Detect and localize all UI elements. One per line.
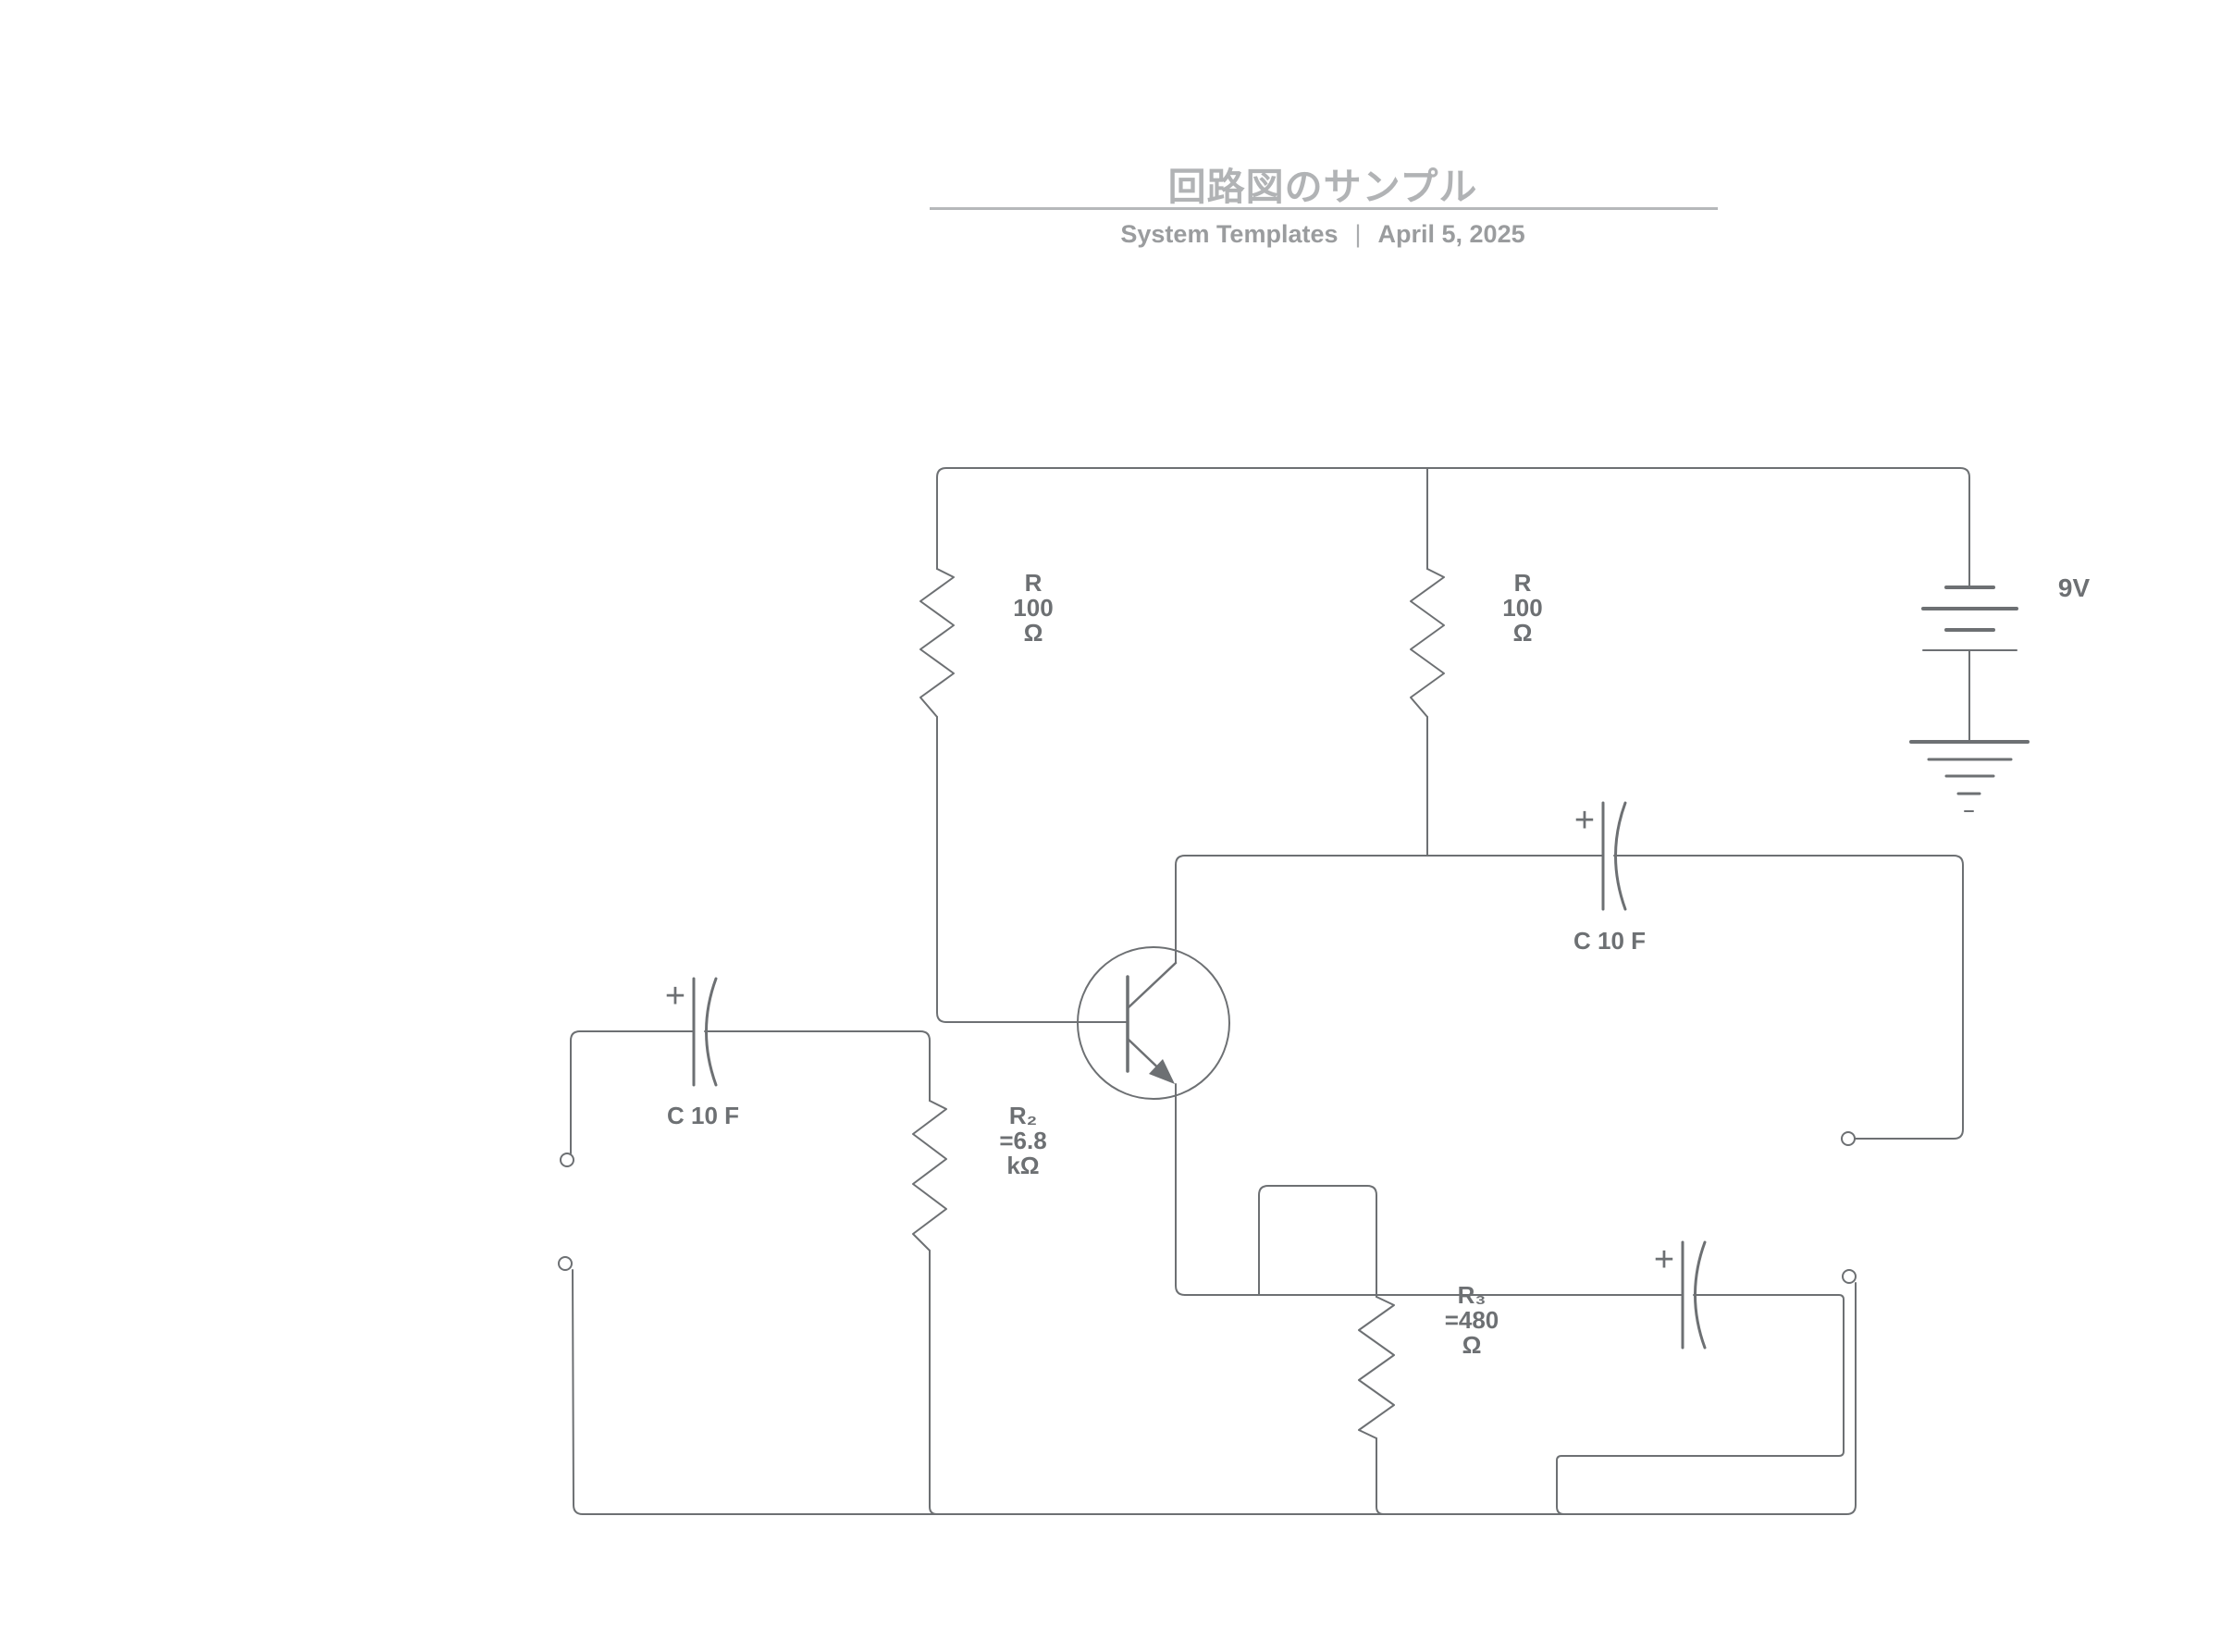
wire [1614,856,1963,1139]
transistor-collector [1128,963,1176,1008]
input-terminal-1 [561,1153,574,1166]
label-capacitor-input: C 10 F [624,1103,782,1128]
resistor-zigzag [1359,1297,1394,1438]
label-resistor-r2: R₂ =6.8 kΩ [944,1103,1102,1178]
wire [930,1251,937,1514]
wire [573,1270,583,1514]
battery-9v [1923,587,2017,742]
wire [705,1031,930,1101]
circuit-canvas [0,0,2221,1652]
wire [937,468,1969,587]
plus-polarity-input-cap: + [652,978,698,1015]
label-resistor-top-left: R 100 Ω [955,571,1112,646]
wire [1376,1438,1384,1514]
bottom-rail [583,1283,1856,1514]
resistor-zigzag [1411,569,1444,717]
collector-net [1176,856,1963,1139]
label-capacitor-top: C 10 F [1531,929,1688,954]
label-resistor-r3: R₃ =480 Ω [1393,1283,1550,1358]
resistor-r3 [1359,1297,1394,1514]
output-terminal-2 [1843,1270,1856,1283]
power-rail [937,468,1969,587]
resistor-r2 [913,1101,946,1514]
resistor-zigzag [913,1101,946,1251]
output-terminal-1 [1842,1132,1855,1145]
wire-loop [1259,1186,1376,1297]
input-terminal-2 [559,1257,572,1270]
wire [1176,1084,1185,1295]
plus-polarity-output-cap: + [1641,1241,1687,1278]
wire [937,717,1128,1022]
circuit-diagram-page: 回路図のサンプル System Templates | April 5, 202… [0,0,2221,1652]
resistor-zigzag [920,569,954,717]
ground-symbol [1911,742,2028,811]
wire [571,1031,580,1153]
resistor-r-top-middle [1411,569,1444,856]
label-resistor-top-middle: R 100 Ω [1444,571,1601,646]
wire [583,1283,1856,1514]
plus-polarity-top-cap: + [1561,802,1608,839]
label-battery: 9V [2044,575,2104,600]
